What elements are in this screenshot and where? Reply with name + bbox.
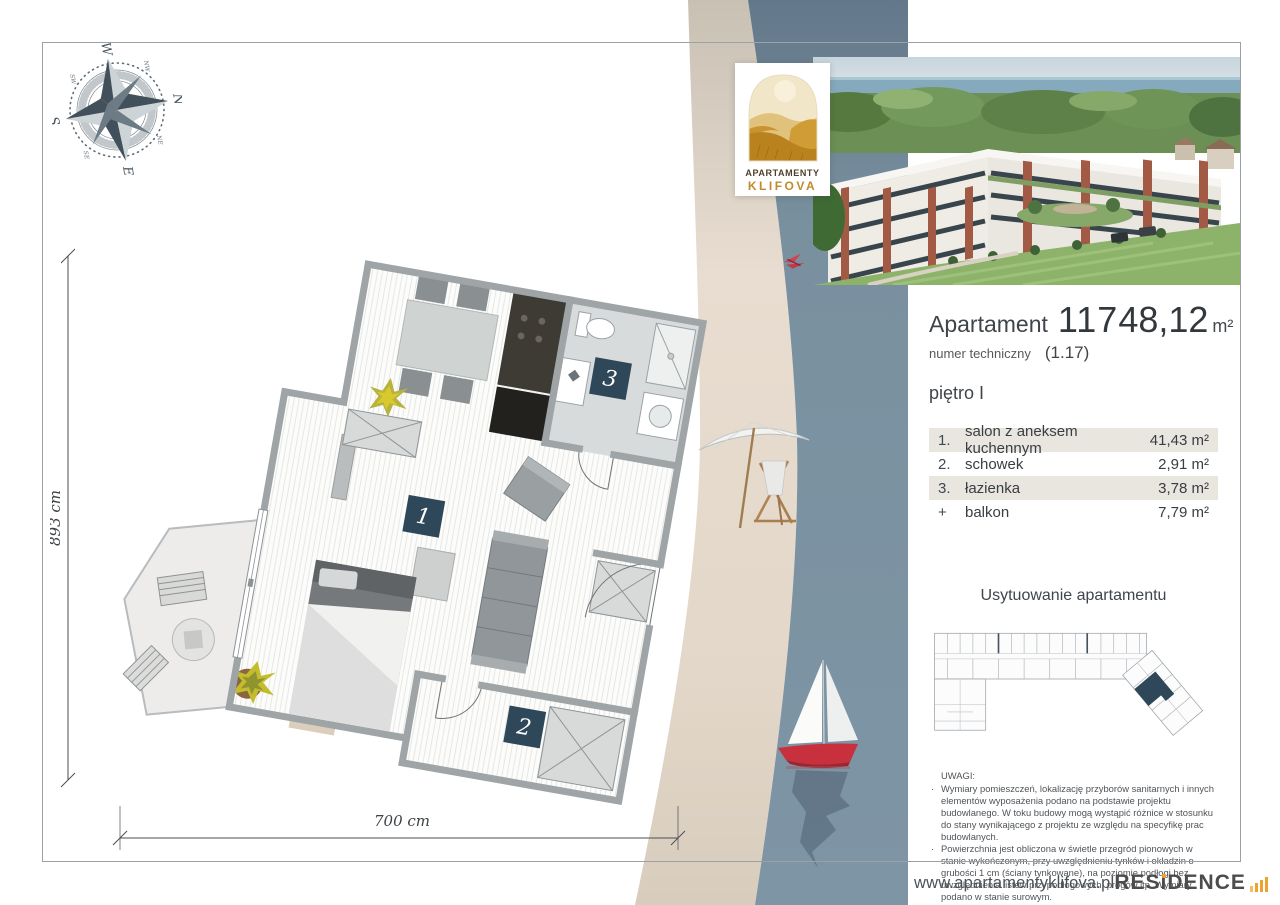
building-render-photo bbox=[813, 57, 1240, 285]
apartment-number: 117 bbox=[1058, 299, 1118, 341]
technical-number-label: numer techniczny bbox=[929, 346, 1031, 361]
logo-text-line2: KLIFOVA bbox=[748, 179, 817, 193]
apartment-label: Apartament bbox=[929, 311, 1048, 338]
technical-number: (1.17) bbox=[1045, 343, 1089, 363]
compass-w: W bbox=[97, 41, 114, 58]
table-row: 3. łazienka 3,78 m² bbox=[929, 476, 1218, 500]
table-row: + balkon 7,79 m² bbox=[929, 500, 1218, 524]
floor-plan: 893 cm 700 cm bbox=[50, 228, 710, 863]
compass-se: SE bbox=[82, 150, 90, 160]
residence-logo: RESıDENCE bbox=[1114, 871, 1268, 895]
plan-width-label: 700 cm bbox=[374, 812, 430, 830]
compass-sw: SW bbox=[68, 74, 77, 86]
location-title: Usytuowanie apartamentu bbox=[929, 587, 1218, 605]
table-row: 2. schowek 2,91 m² bbox=[929, 452, 1218, 476]
footer-bar: www.apartamentyklifova.pl RESıDENCE bbox=[908, 861, 1239, 905]
room-badge-3: 3 bbox=[589, 357, 632, 400]
rooms-table: 1. salon z aneksem kuchennym 41,43 m² 2.… bbox=[929, 428, 1218, 524]
logo-card: APARTAMENTY KLIFOVA bbox=[735, 63, 830, 196]
notes-title: UWAGI: bbox=[941, 770, 1218, 782]
logo-arch-illustration bbox=[745, 71, 821, 163]
plan-height-label: 893 cm bbox=[50, 490, 64, 546]
room-badge-2: 2 bbox=[503, 706, 546, 749]
compass-ne: NE bbox=[155, 134, 164, 146]
compass-s: S bbox=[52, 116, 62, 127]
compass-n: N bbox=[169, 91, 182, 106]
apartment-header: Apartament 117 numer techniczny (1.17) 4… bbox=[929, 299, 1218, 363]
logo-text-line1: APARTAMENTY bbox=[745, 168, 819, 178]
compass-rose: N E S W NE SE SW NW bbox=[52, 40, 182, 180]
room-badge-1: 1 bbox=[402, 495, 445, 538]
building-location-plan bbox=[929, 615, 1218, 743]
apartment-area: 48,12m² bbox=[1118, 299, 1233, 341]
note-item: Wymiary pomieszczeń, lokalizację przybor… bbox=[929, 783, 1218, 843]
coffee-table bbox=[409, 547, 455, 601]
table-row: 1. salon z aneksem kuchennym 41,43 m² bbox=[929, 428, 1218, 452]
floor-label: piętro I bbox=[929, 383, 1218, 404]
compass-e: E bbox=[119, 164, 136, 177]
brochure-page: N E S W NE SE SW NW bbox=[0, 0, 1280, 905]
compass-star bbox=[57, 50, 177, 170]
website-link[interactable]: www.apartamentyklifova.pl bbox=[914, 874, 1114, 893]
bar-chart-icon bbox=[1250, 877, 1269, 895]
